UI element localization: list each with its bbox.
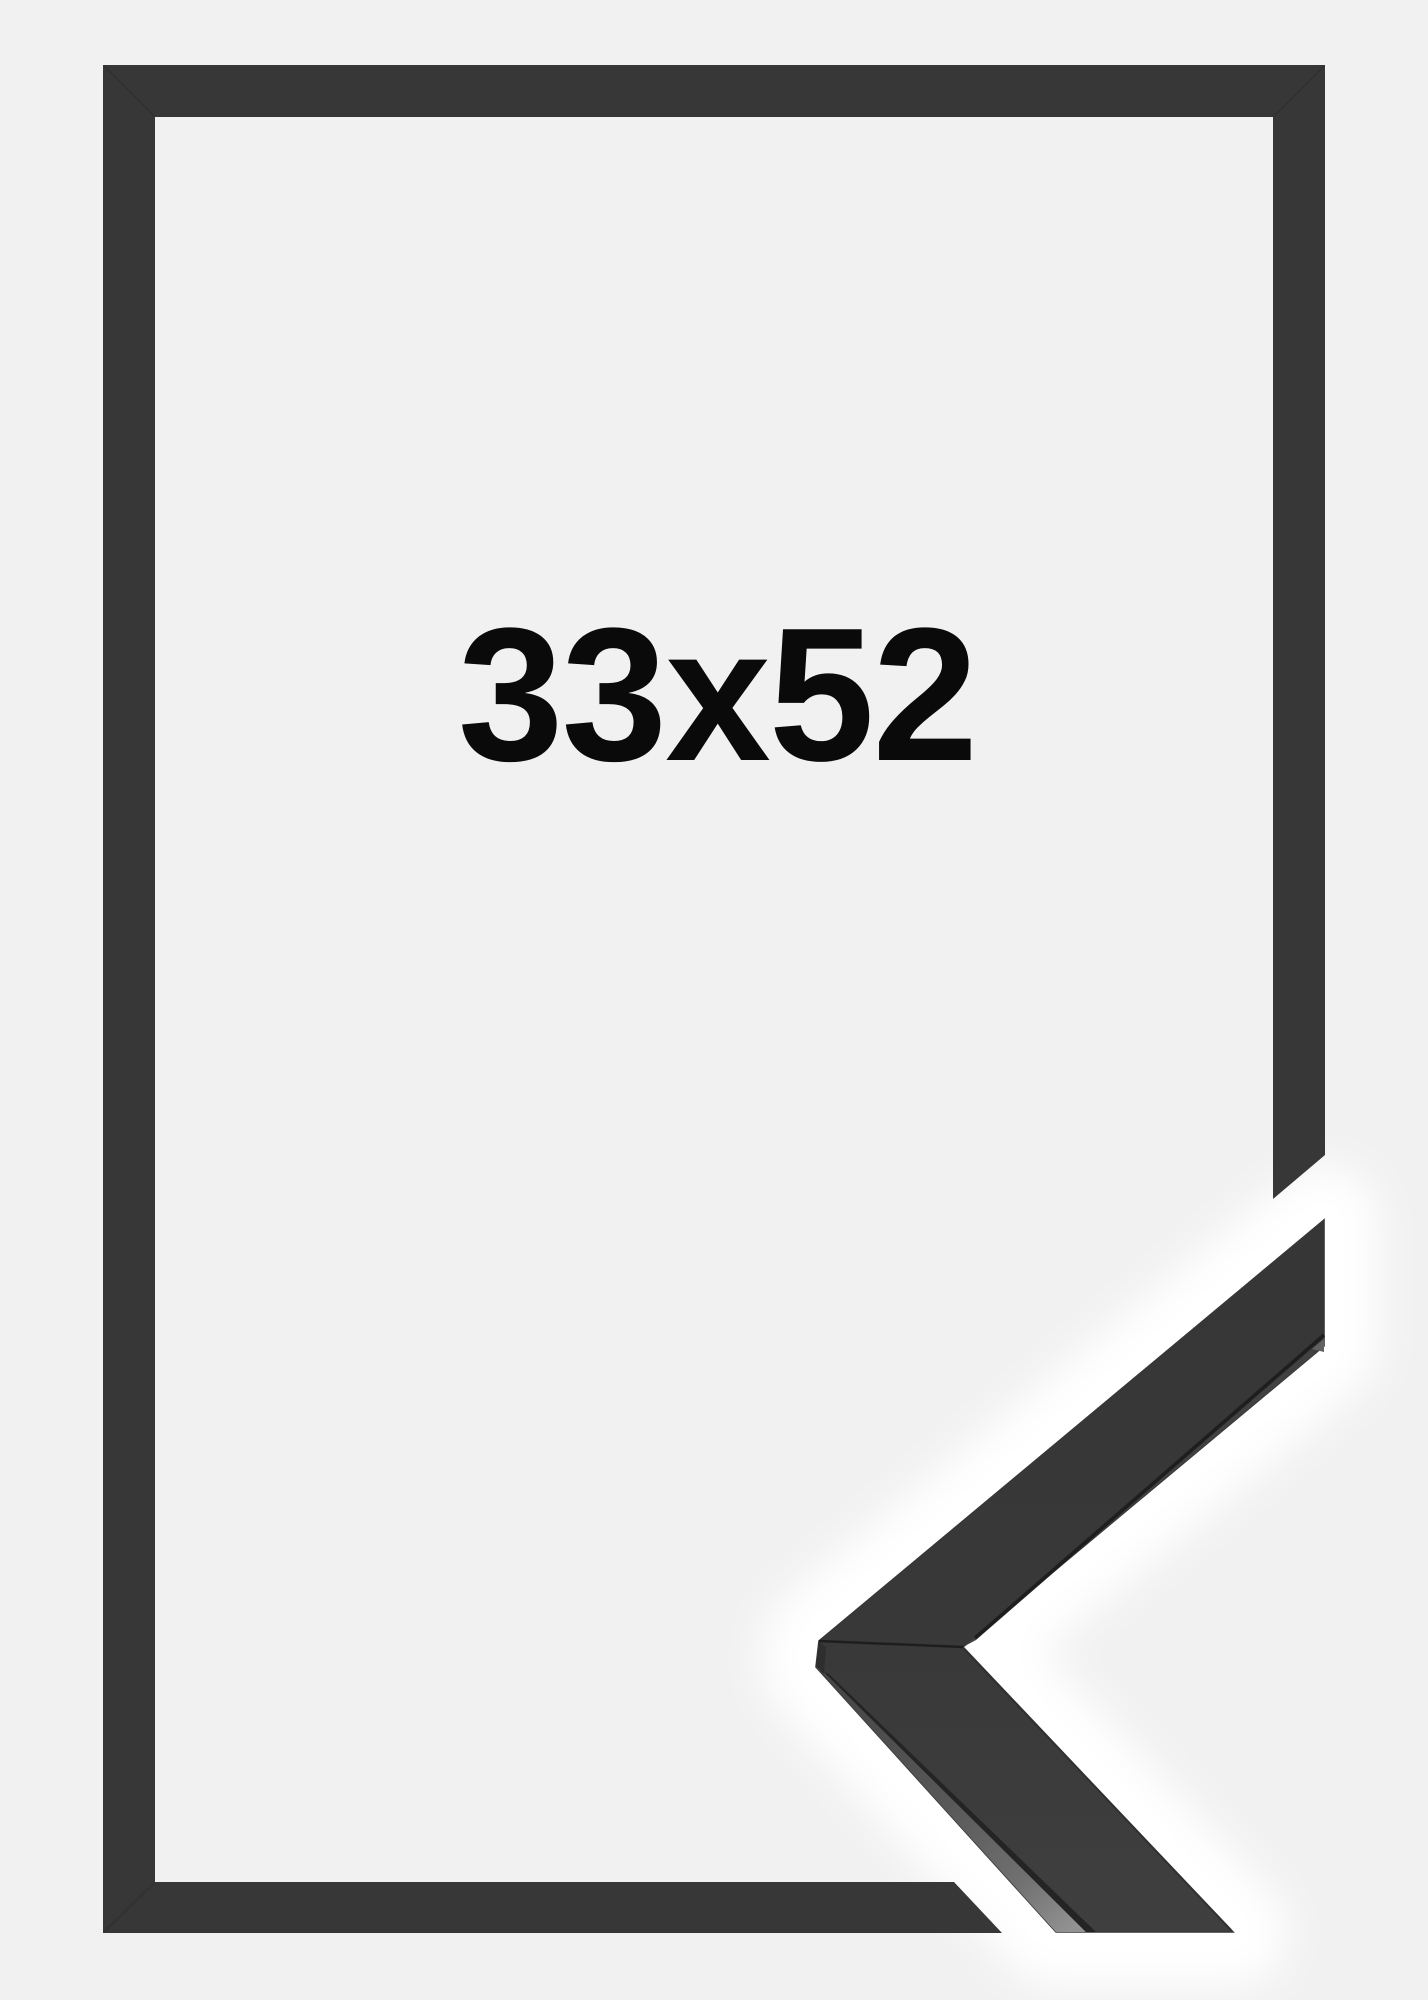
- svg-text:33x52: 33x52: [458, 589, 976, 801]
